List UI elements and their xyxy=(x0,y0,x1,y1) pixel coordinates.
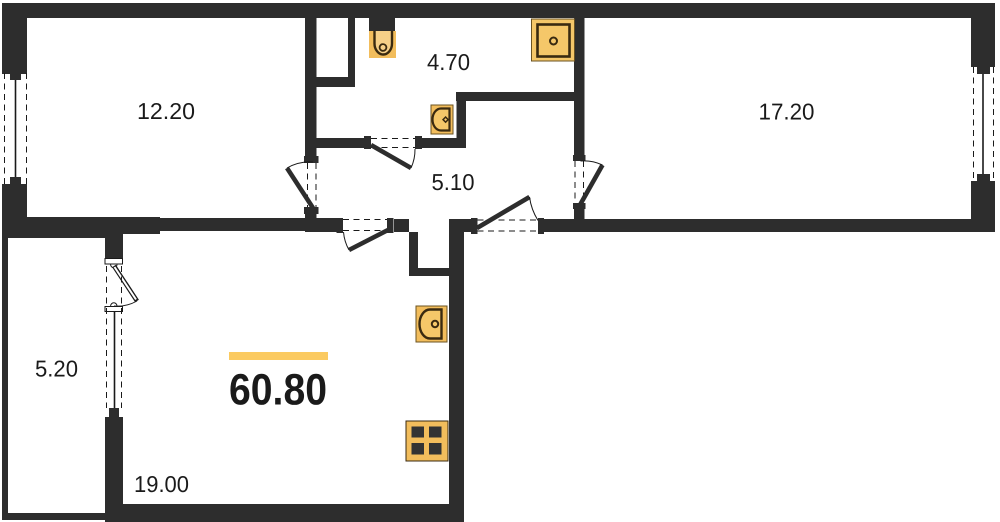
svg-text:5.20: 5.20 xyxy=(35,356,78,382)
svg-text:4.70: 4.70 xyxy=(427,49,470,75)
svg-text:12.20: 12.20 xyxy=(137,98,195,124)
svg-text:5.10: 5.10 xyxy=(432,169,475,195)
svg-text:19.00: 19.00 xyxy=(134,471,189,497)
svg-text:17.20: 17.20 xyxy=(759,99,815,125)
svg-text:60.80: 60.80 xyxy=(229,366,327,415)
